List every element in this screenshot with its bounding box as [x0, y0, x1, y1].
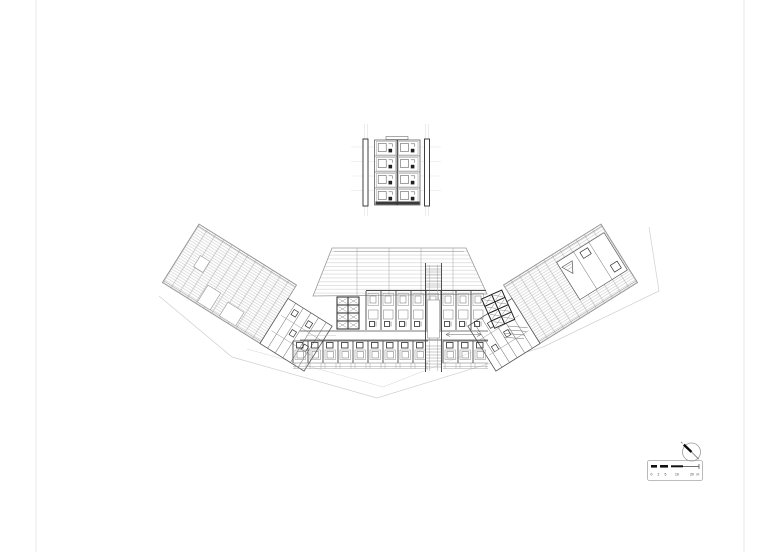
- elevator-cell: [348, 313, 359, 321]
- detail-top-lobby: [386, 137, 408, 140]
- stair-treads-lower: [426, 346, 441, 367]
- guest-rooms-bottom-row: [293, 341, 488, 369]
- detail-dark-band: [376, 202, 420, 205]
- scale-bar: 0 2 5 10 20 m: [648, 461, 703, 481]
- podium-roof: [313, 248, 487, 296]
- left-wing-roof: [162, 224, 340, 371]
- scale-label-0: 0: [651, 473, 653, 477]
- elevator-cell: [337, 305, 348, 313]
- guest-room-module: [411, 291, 424, 330]
- elevator-cell: [348, 305, 359, 313]
- guest-room-module: [323, 341, 338, 369]
- guest-room-module: [338, 341, 353, 369]
- detail-rail-left: [363, 139, 368, 206]
- guest-room-module: [368, 341, 383, 369]
- guest-room-module: [366, 291, 379, 330]
- guest-room-module: [353, 341, 368, 369]
- drawing-sheet: 0 2 5 10 20 m: [0, 0, 780, 552]
- scale-segment-3: [671, 465, 683, 467]
- guest-room-module: [456, 291, 469, 330]
- scale-label-2: 2: [658, 473, 660, 477]
- elevator-bank-left: [337, 297, 359, 329]
- guest-room-module: [398, 341, 413, 369]
- detail-rail-right: [425, 139, 430, 206]
- elevator-cell: [337, 313, 348, 321]
- guest-rooms-top-row: [366, 291, 484, 330]
- elevator-cell: [348, 297, 359, 305]
- north-needle-dark-half: [684, 445, 692, 452]
- guest-room-module: [381, 291, 394, 330]
- scale-labels: 0 2 5 10 20 m: [651, 473, 700, 477]
- scale-segment-1: [651, 465, 657, 468]
- guest-room-module: [443, 341, 458, 369]
- guest-room-module: [441, 291, 454, 330]
- scale-label-20: 20: [690, 473, 694, 477]
- scale-label-10: 10: [675, 473, 679, 477]
- scale-unit: m: [697, 473, 700, 477]
- north-needle-light-half: [692, 452, 699, 459]
- scale-label-5: 5: [665, 473, 667, 477]
- elevator-cell: [337, 297, 348, 305]
- floor-plan-drawing: 0 2 5 10 20 m: [0, 0, 780, 552]
- elevator-cell: [348, 321, 359, 329]
- main-floor-plan: [162, 224, 637, 372]
- north-arrow-icon: [681, 442, 701, 461]
- elevator-cell: [337, 321, 348, 329]
- scale-segment-2: [660, 465, 668, 468]
- core-detail-plan: [351, 124, 441, 216]
- guest-room-module: [383, 341, 398, 369]
- guest-room-module: [396, 291, 409, 330]
